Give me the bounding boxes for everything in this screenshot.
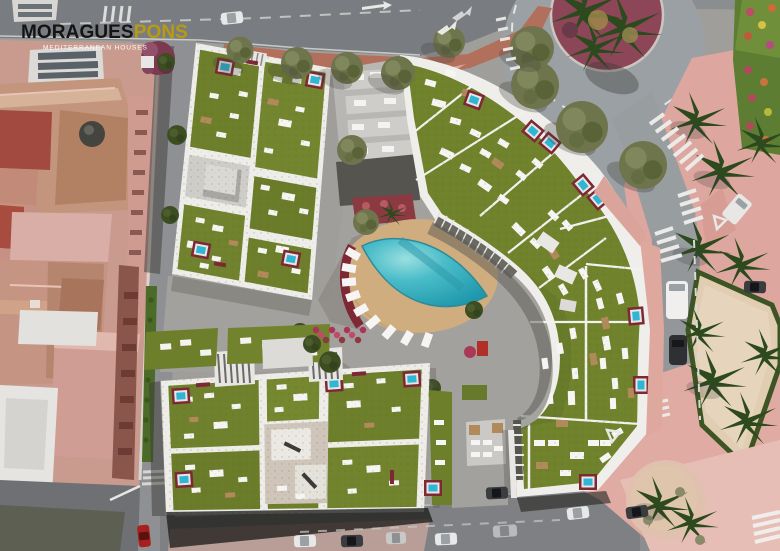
svg-text:MEDITERRANEAN HOUSES: MEDITERRANEAN HOUSES xyxy=(43,45,148,52)
svg-text:MORAGUESPONS: MORAGUESPONS xyxy=(21,22,188,43)
